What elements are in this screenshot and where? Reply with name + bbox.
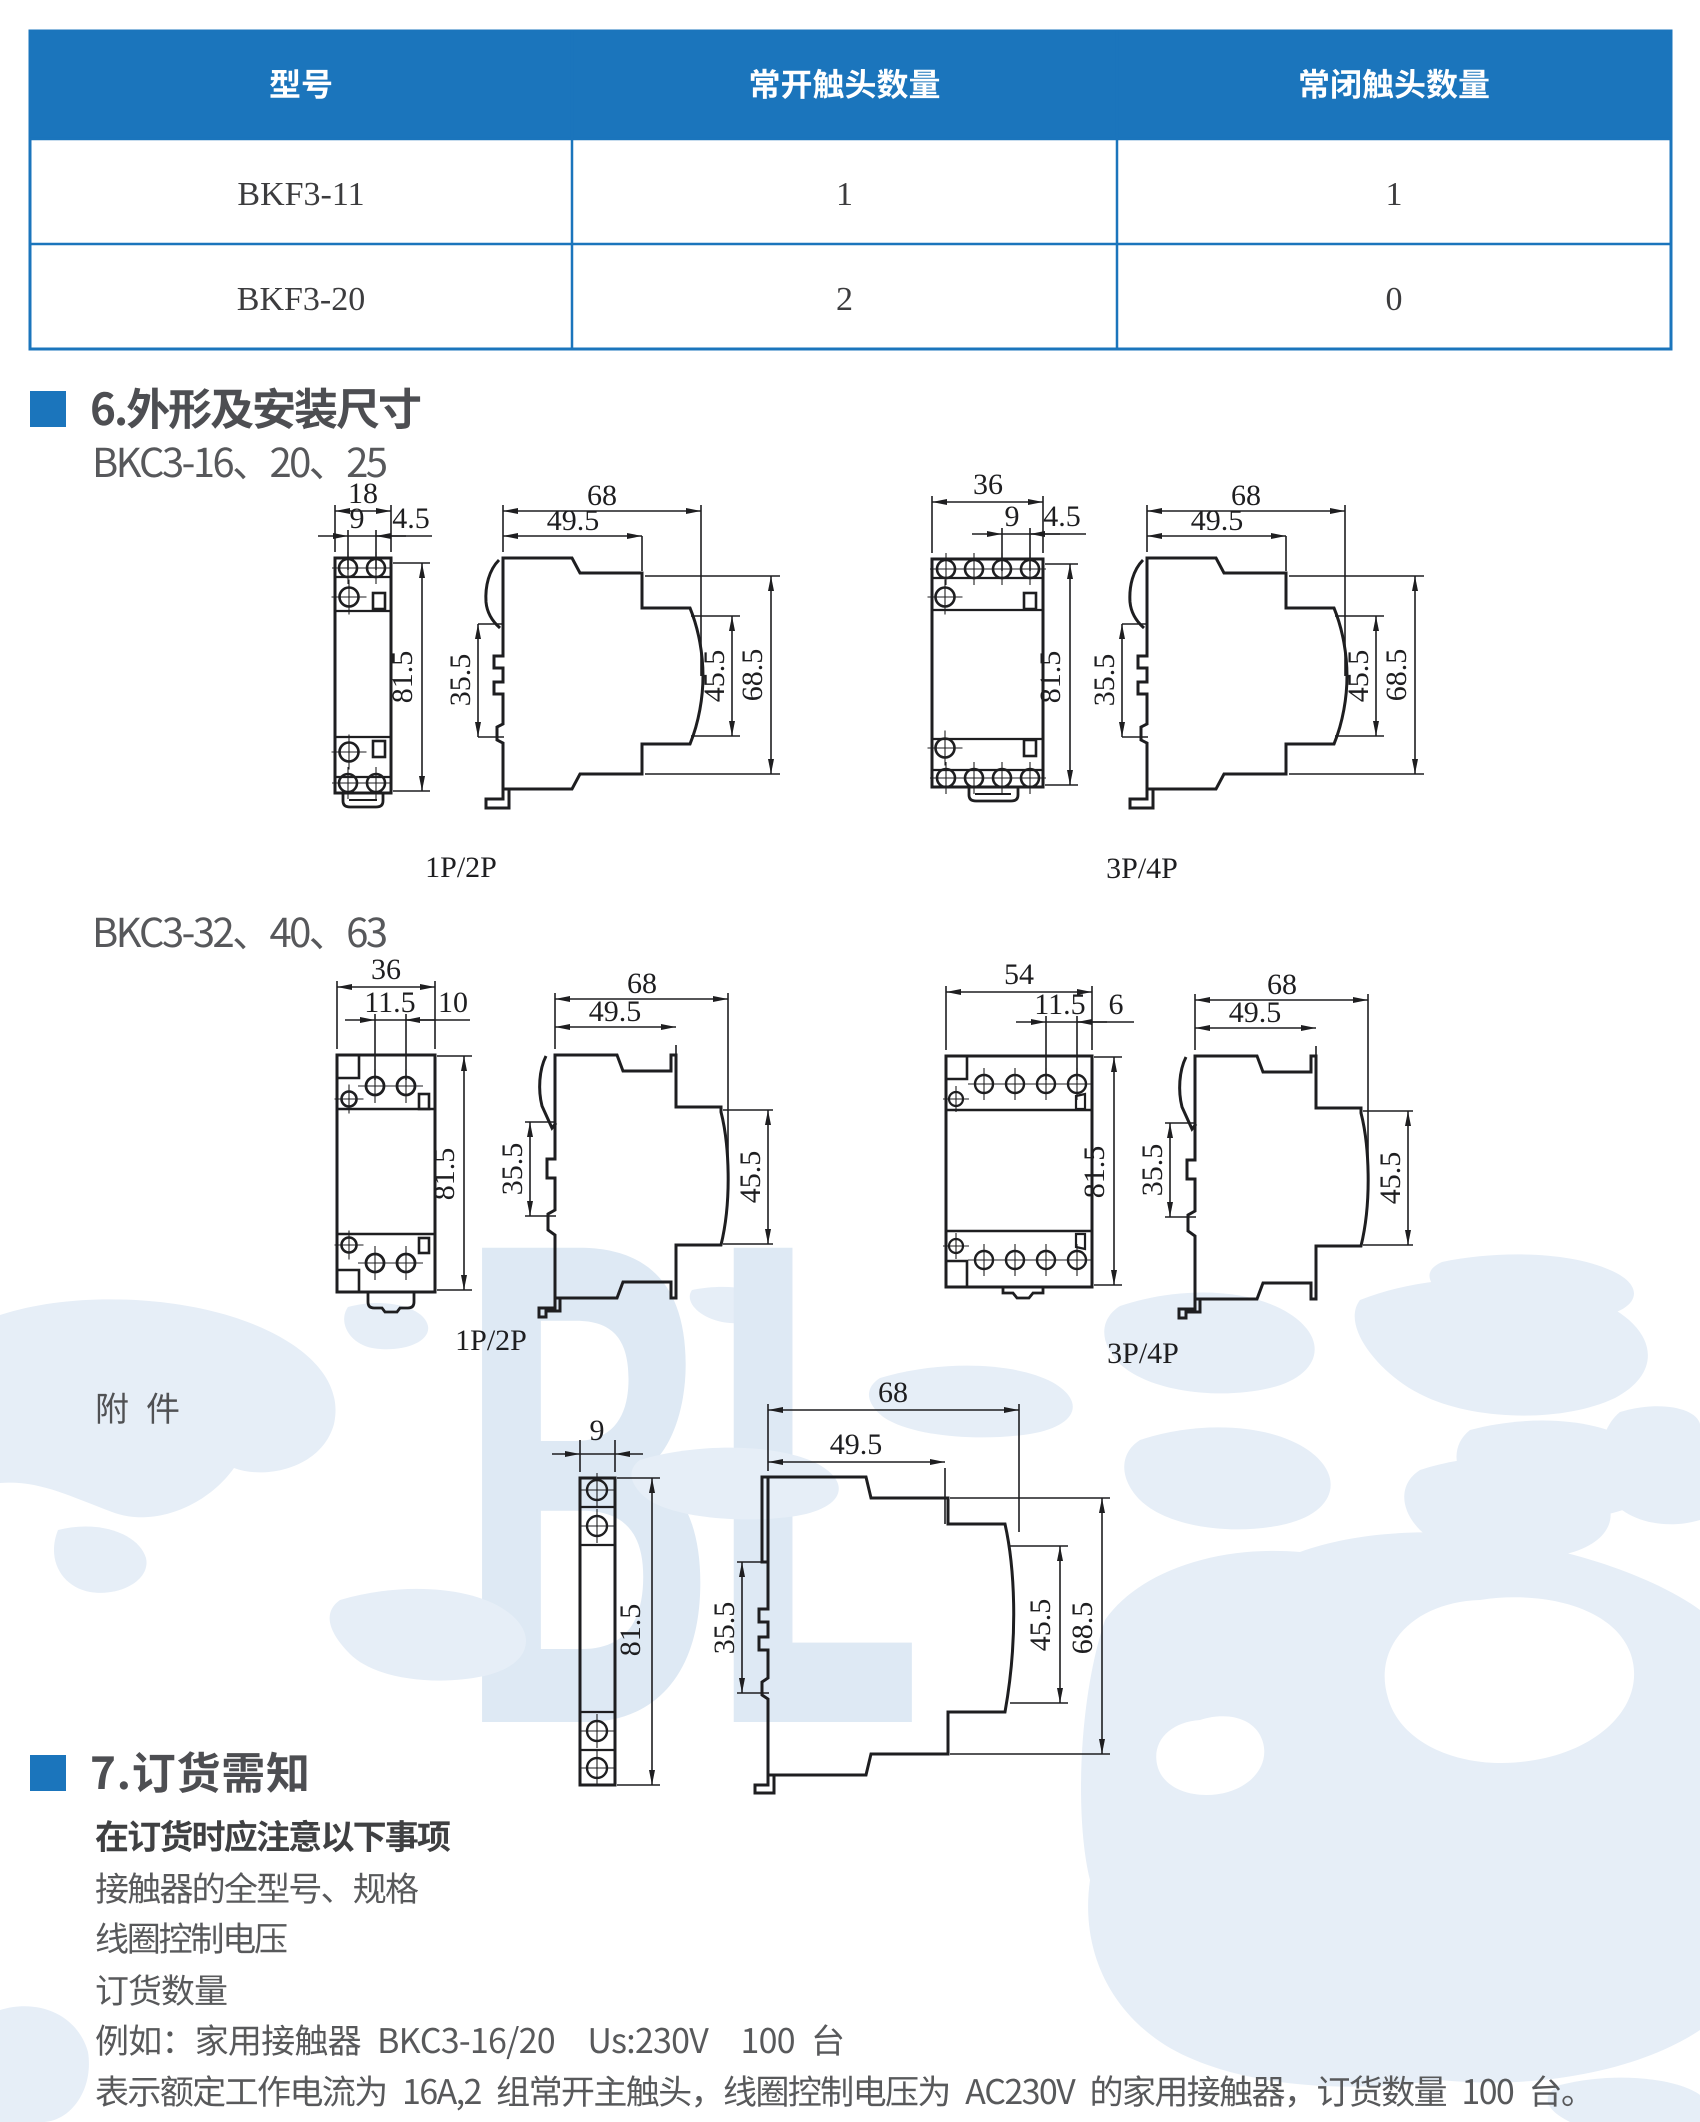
svg-text:1: 1 xyxy=(836,176,853,213)
svg-text:6: 6 xyxy=(1109,988,1124,1021)
svg-text:35.5: 35.5 xyxy=(496,1143,529,1196)
svg-text:81.5: 81.5 xyxy=(1078,1146,1111,1199)
svg-text:35.5: 35.5 xyxy=(708,1602,741,1655)
svg-text:9: 9 xyxy=(590,1414,605,1447)
svg-text:2: 2 xyxy=(836,281,853,318)
svg-text:81.5: 81.5 xyxy=(1034,651,1067,704)
svg-text:0: 0 xyxy=(1386,281,1403,318)
svg-text:35.5: 35.5 xyxy=(1136,1144,1169,1197)
svg-text:45.5: 45.5 xyxy=(734,1151,767,1204)
svg-text:49.5: 49.5 xyxy=(830,1428,883,1461)
svg-text:9: 9 xyxy=(1005,500,1020,533)
svg-text:81.5: 81.5 xyxy=(428,1148,461,1201)
svg-text:36: 36 xyxy=(973,468,1003,501)
svg-text:1P/2P: 1P/2P xyxy=(425,851,497,884)
svg-text:4.5: 4.5 xyxy=(1043,500,1081,533)
svg-text:11.5: 11.5 xyxy=(1034,988,1085,1021)
svg-text:10: 10 xyxy=(438,986,468,1019)
svg-text:81.5: 81.5 xyxy=(614,1604,647,1657)
svg-text:45.5: 45.5 xyxy=(1024,1599,1057,1652)
svg-text:35.5: 35.5 xyxy=(444,654,477,707)
svg-text:35.5: 35.5 xyxy=(1088,654,1121,707)
svg-text:68.5: 68.5 xyxy=(1066,1602,1099,1655)
svg-text:9: 9 xyxy=(350,502,365,535)
svg-text:4.5: 4.5 xyxy=(392,502,430,535)
svg-text:BKF3-11: BKF3-11 xyxy=(237,176,364,213)
svg-text:68: 68 xyxy=(878,1376,908,1409)
svg-text:68.5: 68.5 xyxy=(736,649,769,702)
svg-text:1: 1 xyxy=(1386,176,1403,213)
svg-text:36: 36 xyxy=(371,953,401,986)
svg-text:81.5: 81.5 xyxy=(386,651,419,704)
svg-text:BKF3-20: BKF3-20 xyxy=(237,281,365,318)
svg-text:3P/4P: 3P/4P xyxy=(1107,1337,1179,1370)
svg-text:68.5: 68.5 xyxy=(1380,649,1413,702)
svg-text:45.5: 45.5 xyxy=(698,650,731,703)
svg-text:49.5: 49.5 xyxy=(589,995,642,1028)
svg-text:49.5: 49.5 xyxy=(1191,504,1244,537)
svg-text:49.5: 49.5 xyxy=(1229,996,1282,1029)
svg-text:3P/4P: 3P/4P xyxy=(1106,852,1178,885)
svg-text:1P/2P: 1P/2P xyxy=(455,1324,527,1357)
svg-text:49.5: 49.5 xyxy=(547,504,600,537)
svg-text:45.5: 45.5 xyxy=(1342,650,1375,703)
svg-text:45.5: 45.5 xyxy=(1374,1152,1407,1205)
svg-text:54: 54 xyxy=(1004,958,1034,991)
svg-text:11.5: 11.5 xyxy=(364,986,415,1019)
